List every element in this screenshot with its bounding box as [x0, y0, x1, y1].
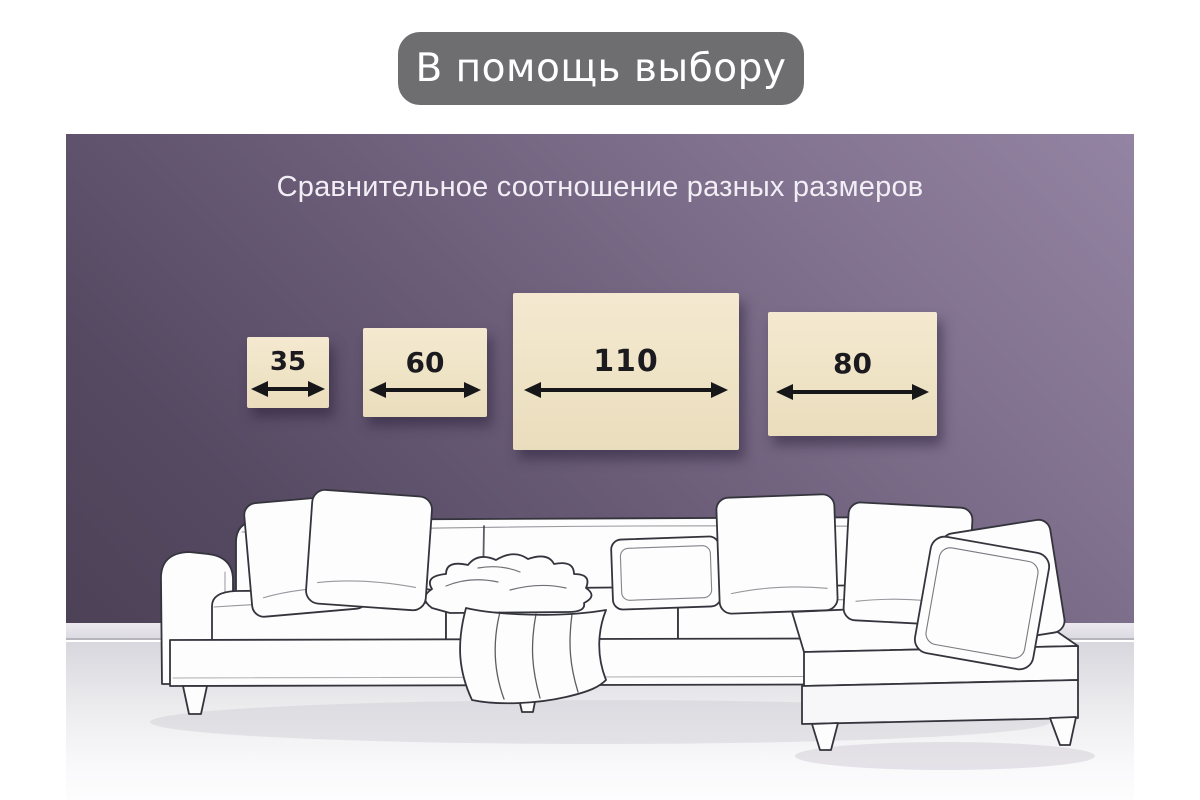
arrowhead-left-icon — [776, 384, 793, 400]
arrowhead-right-icon — [912, 384, 929, 400]
width-arrow-icon — [524, 383, 727, 397]
size-label-35: 35 — [270, 349, 306, 376]
arrowhead-right-icon — [711, 382, 728, 398]
arrowhead-right-icon — [308, 381, 325, 397]
width-arrow-icon — [776, 385, 928, 399]
size-swatch-80: 80 — [768, 312, 937, 436]
header-banner: В помощь выбору — [0, 0, 1200, 134]
arrowhead-right-icon — [464, 382, 481, 398]
size-label-60: 60 — [406, 348, 445, 377]
help-badge-label: В помощь выбору — [416, 46, 787, 91]
size-comparison-panel: Сравнительное соотношение разных размеро… — [66, 134, 1134, 800]
floor — [66, 642, 1134, 800]
size-swatch-60: 60 — [363, 328, 487, 417]
help-badge: В помощь выбору — [398, 32, 804, 105]
arrowhead-left-icon — [524, 382, 541, 398]
width-arrow-icon — [251, 382, 325, 396]
size-label-80: 80 — [833, 349, 872, 378]
size-guide-infographic: В помощь выбору Сравнительное соотношени… — [0, 0, 1200, 800]
size-swatch-35: 35 — [247, 337, 329, 408]
arrowhead-left-icon — [251, 381, 268, 397]
baseboard — [66, 623, 1134, 640]
width-arrow-icon — [369, 383, 481, 397]
arrowhead-left-icon — [369, 382, 386, 398]
size-label-110: 110 — [593, 346, 659, 378]
size-swatch-110: 110 — [513, 293, 739, 450]
panel-subtitle: Сравнительное соотношение разных размеро… — [66, 171, 1134, 204]
